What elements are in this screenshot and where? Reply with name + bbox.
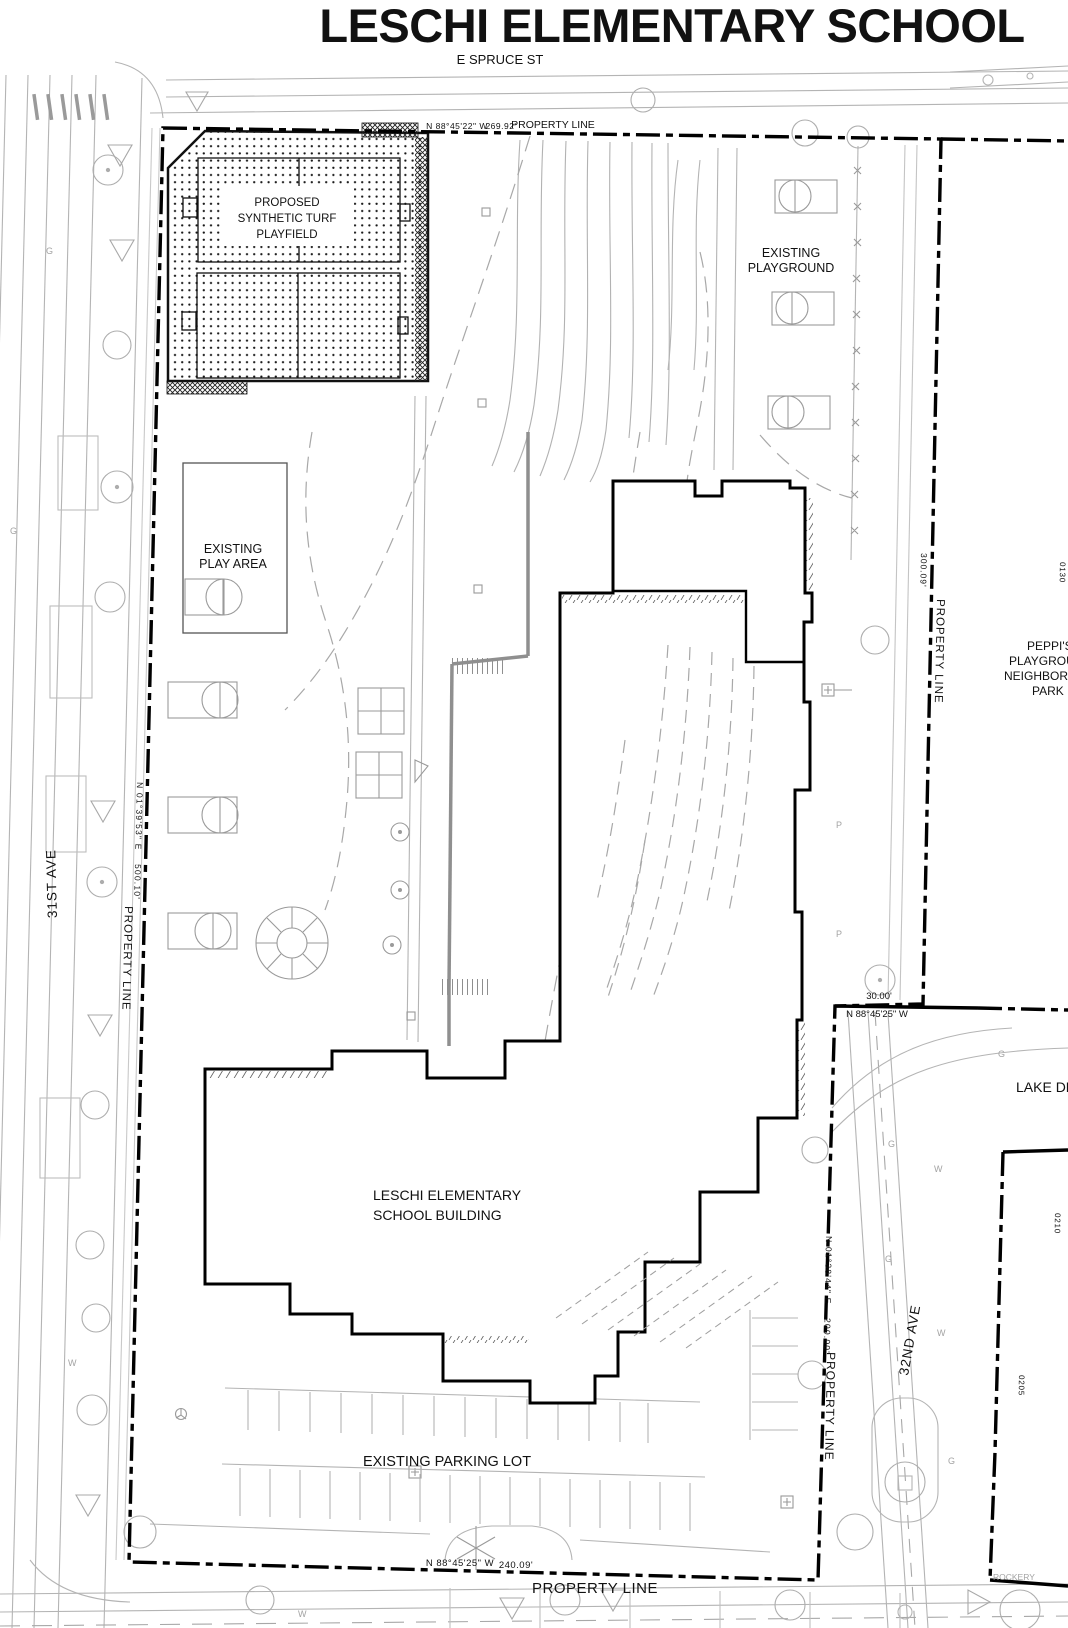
park-label-line2: PLAYGROU (1009, 654, 1068, 668)
park-label-line3: NEIGHBORH (1004, 669, 1068, 683)
water-mark: W (934, 1164, 943, 1174)
basketball-courts-west (168, 579, 242, 949)
playground-label-line2: PLAYGROUND (748, 261, 835, 275)
distance-east-upper: 300.09' (918, 553, 929, 588)
distance-west: 500.10' (132, 864, 143, 900)
distance-east-lower: 200.00' (822, 1318, 833, 1354)
gas-mark: G (885, 1254, 892, 1264)
gas-mark: G (46, 246, 53, 256)
property-line-label-east-upper: PROPERTY LINE (932, 599, 946, 704)
play-area-label-line1: EXISTING (204, 542, 262, 556)
water-mark: W (937, 1328, 946, 1338)
school-building (205, 481, 813, 1403)
playfield-label-line2: SYNTHETIC TURF (238, 213, 337, 225)
playground-label-line1: EXISTING (762, 246, 820, 260)
playfield-label-line3: PLAYFIELD (256, 229, 317, 241)
four-square-courts (356, 688, 428, 798)
bearing-east-lower: N 01°38'44" E (823, 1236, 834, 1305)
street-label-lake-dell: LAKE DEL (1016, 1079, 1068, 1095)
play-area-label-line2: PLAY AREA (199, 557, 267, 571)
distance-east-jog: 30.00' (866, 991, 892, 1002)
gas-mark: G (998, 1049, 1005, 1059)
utility-letters: G G G G G G W W W W P P (10, 246, 1005, 1619)
pole-mark: P (836, 929, 842, 939)
pole-mark: P (836, 820, 842, 830)
parcel-number-0210: 0210 (1053, 1213, 1062, 1234)
park-label-line1: PEPPI'S (1027, 639, 1068, 653)
property-line-label-east-lower: PROPERTY LINE (822, 1352, 838, 1461)
gas-mark: G (10, 526, 17, 536)
parcel-number-0205: 0205 (1017, 1375, 1026, 1396)
page-title: LESCHI ELEMENTARY SCHOOL (319, 0, 1024, 52)
circular-plaza (256, 907, 328, 979)
hatch-strip-east (415, 137, 428, 381)
water-mark: W (68, 1358, 77, 1368)
street-label-right: 32ND AVE (896, 1303, 923, 1376)
covered-walk (449, 432, 528, 1046)
bearing-east-jog: N 88°45'25" W (846, 1009, 908, 1020)
contour-lines (492, 140, 669, 482)
gas-mark: G (888, 1139, 895, 1149)
bearing-south: N 88°45'25" W (426, 1558, 494, 1569)
bearing-north: N 88°45'22" W (426, 121, 488, 131)
parking-lot-label: EXISTING PARKING LOT (363, 1454, 531, 1470)
playfield-label-line1: PROPOSED (254, 197, 319, 209)
site-plan-drawing: LESCHI ELEMENTARY SCHOOL E SPRUCE ST N 8… (0, 0, 1068, 1628)
hatch-block-south (167, 381, 247, 394)
park-label-line4: PARK (1032, 684, 1064, 698)
gas-mark: G (948, 1456, 955, 1466)
building-outline (205, 481, 812, 1403)
water-mark: W (298, 1609, 307, 1619)
basketball-courts-playground (768, 180, 837, 429)
distance-south: 240.09' (499, 1560, 533, 1571)
parcel-number-0130: 0130 (1058, 562, 1067, 583)
property-line-label-west: PROPERTY LINE (119, 906, 134, 1011)
building-label-line2: SCHOOL BUILDING (373, 1207, 502, 1223)
rockery-label: ROCKERY (993, 1572, 1035, 1582)
street-label-top: E SPRUCE ST (457, 52, 544, 67)
street-label-left: 31ST AVE (43, 849, 60, 918)
proposed-playfield (167, 123, 428, 394)
property-line-label-north: PROPERTY LINE (511, 119, 595, 131)
property-line-label-south: PROPERTY LINE (532, 1580, 658, 1597)
bearing-west: N 01°39'53" E (133, 782, 145, 851)
building-label-line1: LESCHI ELEMENTARY (373, 1187, 522, 1203)
